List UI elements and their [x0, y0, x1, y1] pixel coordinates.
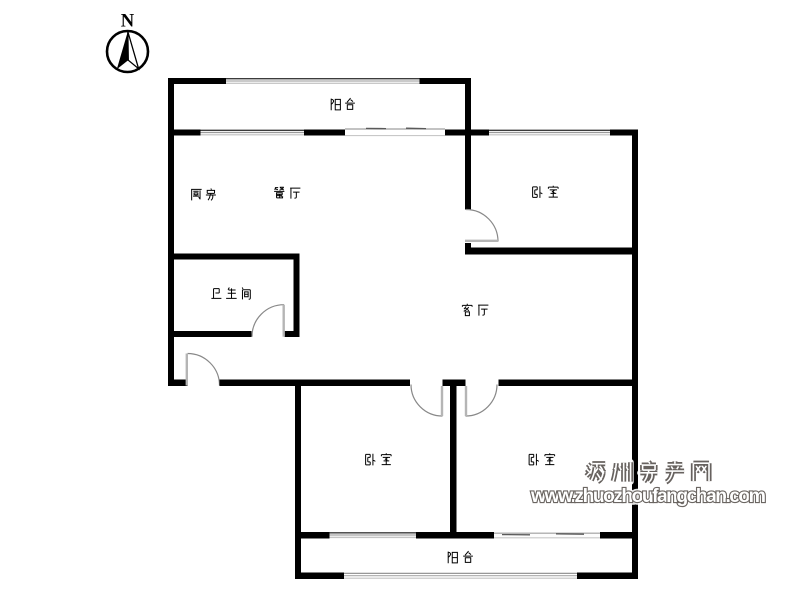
svg-text:www.zhuozhoufangchan.com: www.zhuozhoufangchan.com [530, 485, 766, 507]
svg-text:N: N [121, 10, 135, 31]
